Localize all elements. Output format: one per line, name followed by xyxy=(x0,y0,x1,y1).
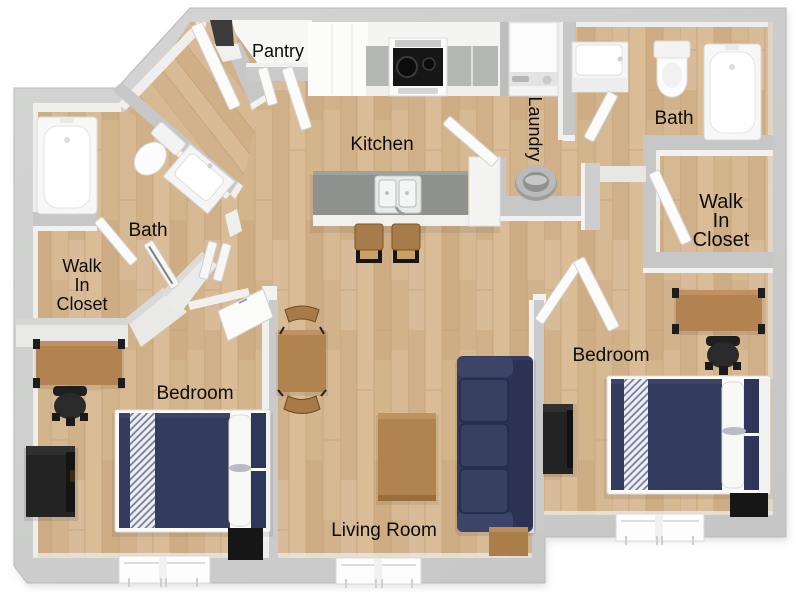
svg-text:In: In xyxy=(74,275,89,295)
svg-text:Pantry: Pantry xyxy=(252,41,304,61)
svg-text:Walk: Walk xyxy=(62,256,102,276)
svg-text:Bedroom: Bedroom xyxy=(156,383,233,404)
svg-text:Kitchen: Kitchen xyxy=(350,134,413,155)
svg-text:Living Room: Living Room xyxy=(331,520,437,541)
svg-text:Bath: Bath xyxy=(654,108,693,129)
svg-text:Closet: Closet xyxy=(56,294,107,314)
svg-text:Laundry: Laundry xyxy=(525,96,545,161)
svg-text:Bedroom: Bedroom xyxy=(572,345,649,366)
svg-text:Bath: Bath xyxy=(128,220,167,241)
svg-text:Closet: Closet xyxy=(693,229,750,251)
